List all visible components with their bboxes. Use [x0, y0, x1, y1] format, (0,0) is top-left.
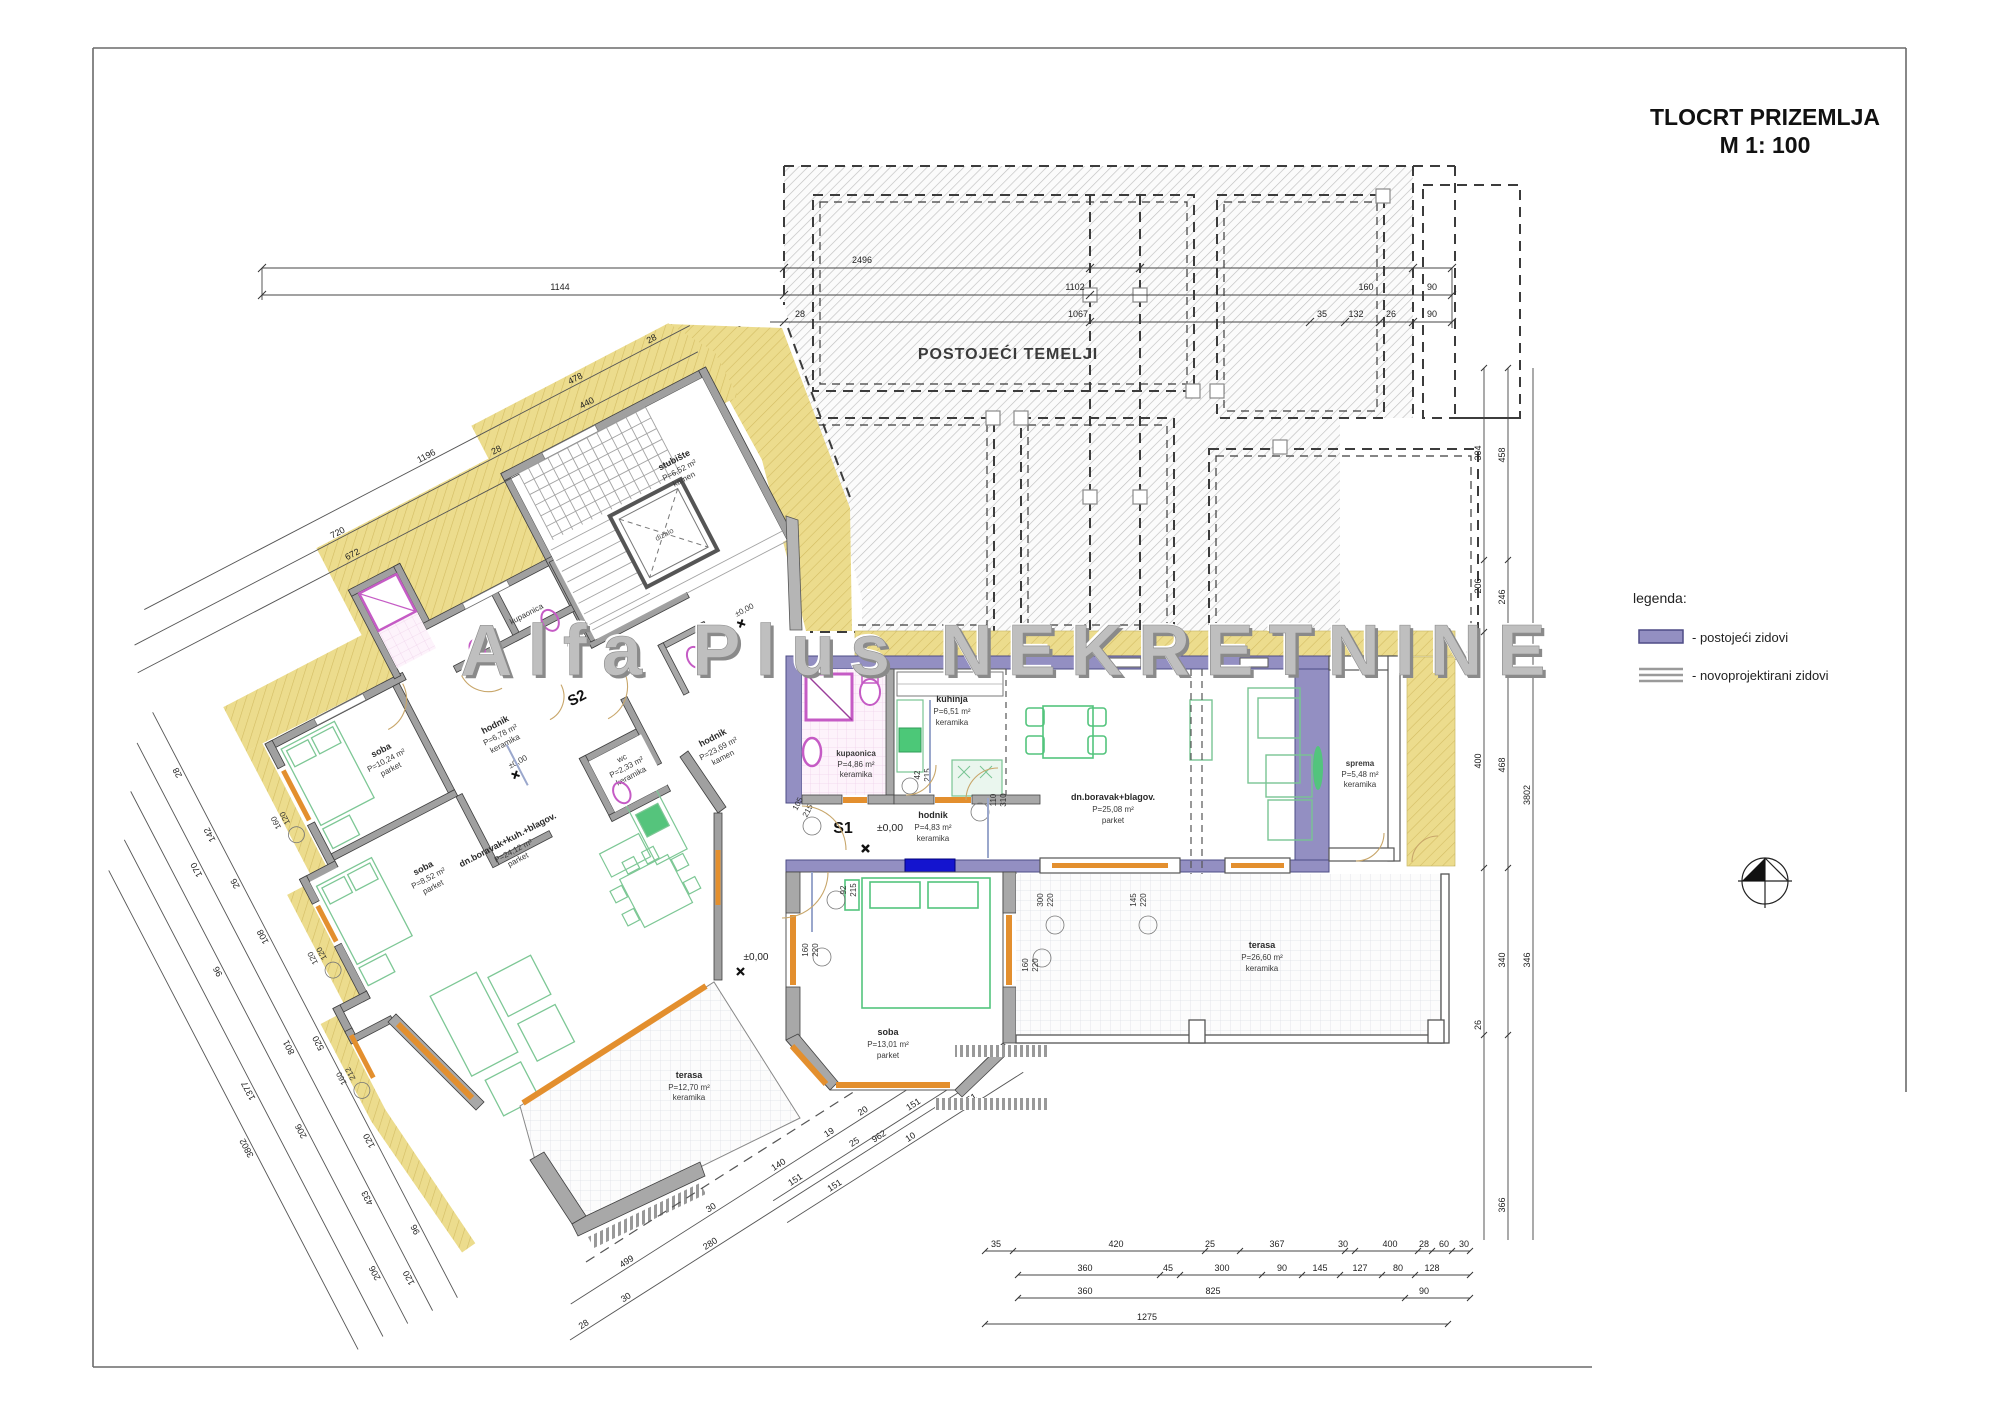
svg-text:dn.boravak+blagov.: dn.boravak+blagov. — [1071, 792, 1155, 802]
svg-text:30: 30 — [1459, 1239, 1469, 1249]
svg-text:keramika: keramika — [936, 718, 969, 727]
svg-text:keramika: keramika — [1246, 964, 1279, 973]
svg-text:458: 458 — [1497, 447, 1507, 462]
svg-text:367: 367 — [1269, 1239, 1284, 1249]
svg-text:360: 360 — [1077, 1286, 1092, 1296]
svg-text:300: 300 — [1036, 893, 1045, 907]
svg-text:45: 45 — [1163, 1263, 1173, 1273]
svg-text:3802: 3802 — [1522, 785, 1532, 805]
svg-text:1067: 1067 — [1068, 309, 1088, 319]
svg-text:340: 340 — [1497, 952, 1507, 967]
svg-text:±0,00: ±0,00 — [877, 822, 903, 834]
svg-text:160: 160 — [801, 943, 810, 957]
svg-text:145: 145 — [1312, 1263, 1327, 1273]
svg-text:1102: 1102 — [1065, 282, 1084, 292]
svg-text:keramika: keramika — [673, 1093, 706, 1102]
svg-text:220: 220 — [1139, 893, 1148, 907]
svg-text:kuhinja: kuhinja — [936, 694, 968, 704]
svg-text:160: 160 — [1021, 958, 1030, 972]
svg-text:42: 42 — [913, 770, 922, 779]
svg-text:28: 28 — [1419, 1239, 1429, 1249]
svg-text:35: 35 — [991, 1239, 1001, 1249]
svg-text:160: 160 — [1358, 282, 1373, 292]
svg-text:92: 92 — [839, 885, 848, 894]
svg-text:366: 366 — [1497, 1197, 1507, 1212]
svg-text:2496: 2496 — [852, 255, 872, 265]
svg-text:±0,00: ±0,00 — [744, 952, 769, 963]
svg-text:246: 246 — [1497, 589, 1507, 604]
svg-text:215: 215 — [849, 883, 858, 897]
svg-text:26: 26 — [1473, 1020, 1483, 1030]
svg-text:25: 25 — [1205, 1239, 1215, 1249]
svg-text:terasa: terasa — [676, 1070, 704, 1080]
svg-text:220: 220 — [811, 943, 820, 957]
svg-text:300: 300 — [1214, 1263, 1229, 1273]
svg-text:M 1: 100: M 1: 100 — [1720, 132, 1811, 158]
svg-text:132: 132 — [1348, 309, 1363, 319]
svg-text:60: 60 — [1439, 1239, 1449, 1249]
svg-text:145: 145 — [1129, 893, 1138, 907]
svg-text:parket: parket — [877, 1051, 900, 1060]
svg-text:P=12,70 m²: P=12,70 m² — [668, 1083, 710, 1092]
svg-text:110: 110 — [989, 793, 998, 806]
svg-text:128: 128 — [1424, 1263, 1439, 1273]
svg-text:P=4,83 m²: P=4,83 m² — [914, 823, 951, 832]
svg-text:468: 468 — [1497, 757, 1507, 772]
svg-text:90: 90 — [1419, 1286, 1429, 1296]
svg-text:keramika: keramika — [917, 834, 950, 843]
svg-text:220: 220 — [1031, 958, 1040, 972]
svg-text:parket: parket — [1102, 816, 1125, 825]
svg-text:terasa: terasa — [1249, 940, 1277, 950]
svg-text:90: 90 — [1427, 309, 1437, 319]
svg-text:P=26,60 m²: P=26,60 m² — [1241, 953, 1283, 962]
svg-text:127: 127 — [1352, 1263, 1367, 1273]
svg-text:P=4,86 m²: P=4,86 m² — [837, 760, 874, 769]
svg-text:206: 206 — [1473, 578, 1483, 593]
svg-text:P=5,48 m²: P=5,48 m² — [1341, 770, 1378, 779]
svg-text:90: 90 — [1277, 1263, 1287, 1273]
svg-text:360: 360 — [1077, 1263, 1092, 1273]
svg-text:30: 30 — [1338, 1239, 1348, 1249]
svg-text:sprema: sprema — [1346, 759, 1375, 768]
svg-text:P=13,01 m²: P=13,01 m² — [867, 1040, 909, 1049]
svg-text:420: 420 — [1108, 1239, 1123, 1249]
svg-text:220: 220 — [1046, 893, 1055, 907]
svg-text:keramika: keramika — [840, 770, 873, 779]
svg-text:P=6,51 m²: P=6,51 m² — [933, 707, 970, 716]
svg-text:legenda:: legenda: — [1633, 590, 1687, 606]
svg-text:keramika: keramika — [1344, 780, 1377, 789]
svg-text:TLOCRT PRIZEMLJA: TLOCRT PRIZEMLJA — [1650, 104, 1880, 130]
svg-text:80: 80 — [1393, 1263, 1403, 1273]
svg-text:1144: 1144 — [550, 282, 569, 292]
svg-text:POSTOJEĆI TEMELJI: POSTOJEĆI TEMELJI — [918, 344, 1098, 363]
svg-text:1275: 1275 — [1137, 1312, 1157, 1322]
svg-text:- novoprojektirani zidovi: - novoprojektirani zidovi — [1692, 668, 1829, 683]
svg-text:400: 400 — [1473, 753, 1483, 768]
svg-text:310: 310 — [999, 793, 1008, 807]
svg-text:P=25,08 m²: P=25,08 m² — [1092, 805, 1134, 814]
svg-text:- postojeći zidovi: - postojeći zidovi — [1692, 630, 1788, 645]
svg-text:825: 825 — [1205, 1286, 1220, 1296]
svg-text:hodnik: hodnik — [918, 810, 948, 820]
svg-text:35: 35 — [1317, 309, 1327, 319]
svg-text:kupaonica: kupaonica — [836, 749, 876, 758]
svg-text:26: 26 — [1386, 309, 1396, 319]
svg-text:soba: soba — [877, 1027, 899, 1037]
svg-text:28: 28 — [795, 309, 805, 319]
svg-text:400: 400 — [1382, 1239, 1397, 1249]
svg-text:304: 304 — [1473, 445, 1483, 460]
svg-text:346: 346 — [1522, 952, 1532, 967]
svg-text:90: 90 — [1427, 282, 1437, 292]
